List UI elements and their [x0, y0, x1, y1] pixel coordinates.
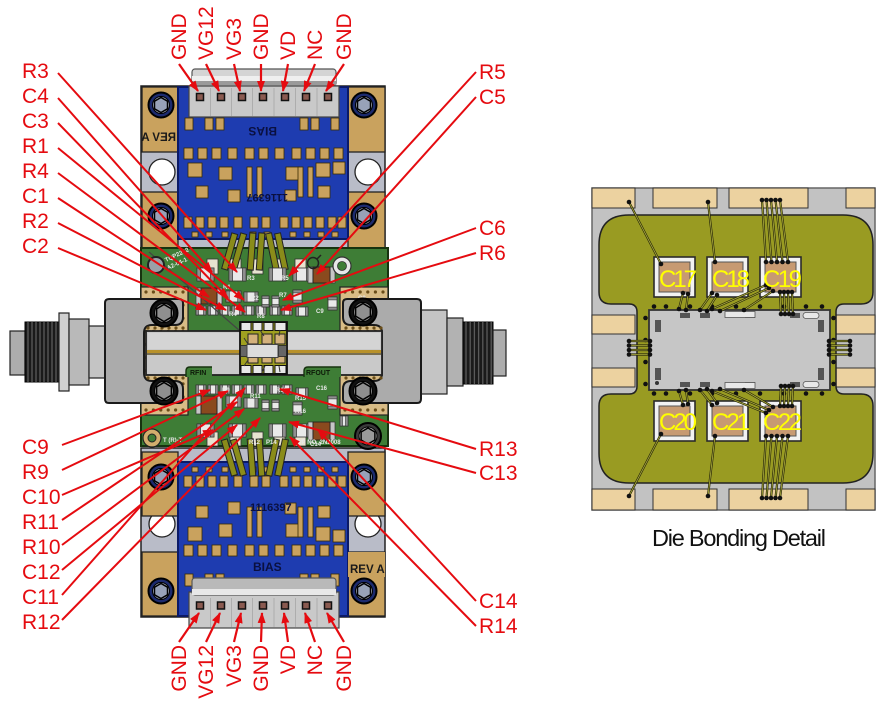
svg-text:C10: C10 [22, 486, 61, 509]
svg-text:VG12: VG12 [195, 6, 218, 60]
svg-text:R3: R3 [22, 60, 49, 83]
svg-text:R3: R3 [247, 276, 255, 282]
svg-text:C21: C21 [712, 409, 750, 436]
svg-text:R4: R4 [22, 160, 49, 183]
svg-text:C19: C19 [763, 266, 802, 293]
svg-text:C5: C5 [479, 86, 506, 109]
svg-text:BIAS: BIAS [253, 560, 282, 574]
svg-text:C2: C2 [22, 235, 49, 258]
svg-text:GND: GND [168, 645, 191, 692]
svg-text:R14: R14 [479, 615, 518, 638]
svg-text:C17: C17 [659, 266, 697, 293]
svg-text:R12: R12 [249, 440, 261, 446]
svg-text:RFIN: RFIN [190, 370, 206, 377]
svg-text:C6: C6 [479, 217, 506, 240]
svg-text:C12: C12 [22, 561, 61, 584]
svg-text:R13: R13 [479, 438, 518, 461]
svg-text:R5: R5 [281, 276, 289, 282]
svg-text:REV A: REV A [141, 132, 176, 144]
svg-text:GND: GND [333, 645, 356, 692]
svg-text:C3: C3 [22, 110, 49, 133]
svg-text:VG3: VG3 [223, 645, 246, 687]
svg-text:NC: NC [304, 30, 327, 60]
svg-text:GND: GND [250, 13, 273, 60]
svg-text:R5: R5 [479, 61, 506, 84]
svg-text:R11: R11 [22, 511, 59, 534]
svg-text:R2: R2 [251, 296, 259, 302]
svg-text:1116397: 1116397 [246, 191, 288, 203]
svg-text:R1: R1 [22, 135, 49, 158]
svg-text:Die Bonding Detail: Die Bonding Detail [652, 525, 826, 551]
svg-text:GND: GND [333, 13, 356, 60]
svg-text:R9: R9 [22, 461, 49, 484]
svg-text:C14: C14 [479, 590, 518, 613]
svg-text:BIAS: BIAS [248, 124, 277, 138]
svg-text:R4: R4 [229, 312, 237, 318]
svg-text:C22: C22 [763, 409, 802, 436]
svg-text:REV A: REV A [350, 564, 385, 576]
svg-text:NC: NC [304, 645, 327, 675]
svg-text:C16: C16 [316, 386, 328, 392]
svg-text:GND: GND [250, 645, 273, 692]
svg-text:VD: VD [277, 31, 300, 60]
svg-text:C9: C9 [316, 309, 324, 315]
svg-text:C20: C20 [659, 409, 697, 436]
svg-text:VG12: VG12 [195, 645, 218, 699]
svg-text:R16: R16 [295, 409, 307, 415]
svg-text:C13: C13 [479, 462, 518, 485]
svg-text:GND: GND [168, 13, 191, 60]
svg-text:C11: C11 [22, 586, 59, 609]
svg-text:C18: C18 [712, 266, 750, 293]
svg-text:R8: R8 [257, 314, 265, 320]
svg-text:P14: P14 [266, 440, 277, 446]
svg-text:RFOUT: RFOUT [306, 370, 331, 377]
svg-text:VG3: VG3 [223, 18, 246, 60]
svg-text:S/P NO. 2N2008: S/P NO. 2N2008 [296, 440, 341, 446]
svg-text:R10: R10 [22, 536, 61, 559]
svg-text:R11: R11 [250, 394, 261, 400]
svg-text:R2: R2 [22, 210, 49, 233]
svg-text:1116397: 1116397 [250, 502, 292, 514]
svg-text:C9: C9 [22, 436, 49, 459]
svg-text:R6: R6 [479, 242, 506, 265]
svg-text:VD: VD [277, 645, 300, 674]
svg-text:C4: C4 [22, 85, 49, 108]
svg-text:R12: R12 [22, 611, 61, 634]
svg-text:C1: C1 [22, 185, 49, 208]
